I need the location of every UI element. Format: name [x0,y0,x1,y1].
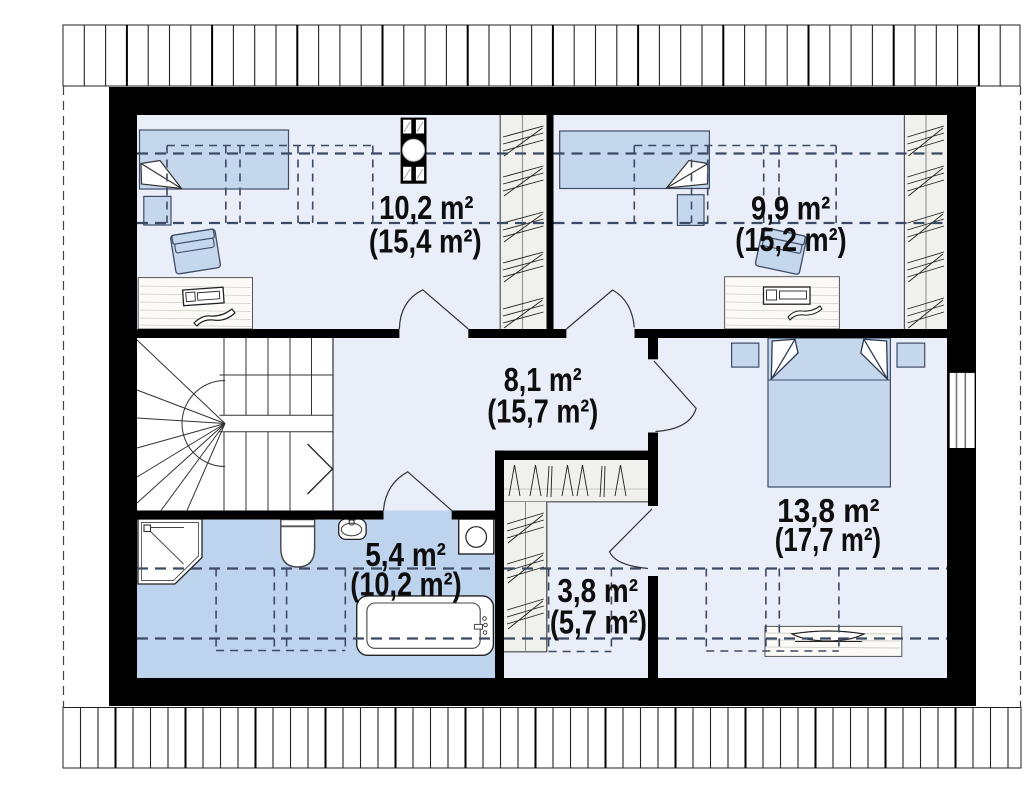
svg-text:(5,7 m²): (5,7 m²) [550,604,647,641]
svg-text:(10,2 m²): (10,2 m²) [350,566,461,603]
svg-text:(15,4 m²): (15,4 m²) [369,223,482,260]
svg-text:(17,7 m²): (17,7 m²) [775,521,881,558]
svg-text:(15,2 m²): (15,2 m²) [735,221,846,258]
svg-text:(15,7 m²): (15,7 m²) [487,393,598,430]
svg-text:10,2 m²: 10,2 m² [379,189,473,226]
